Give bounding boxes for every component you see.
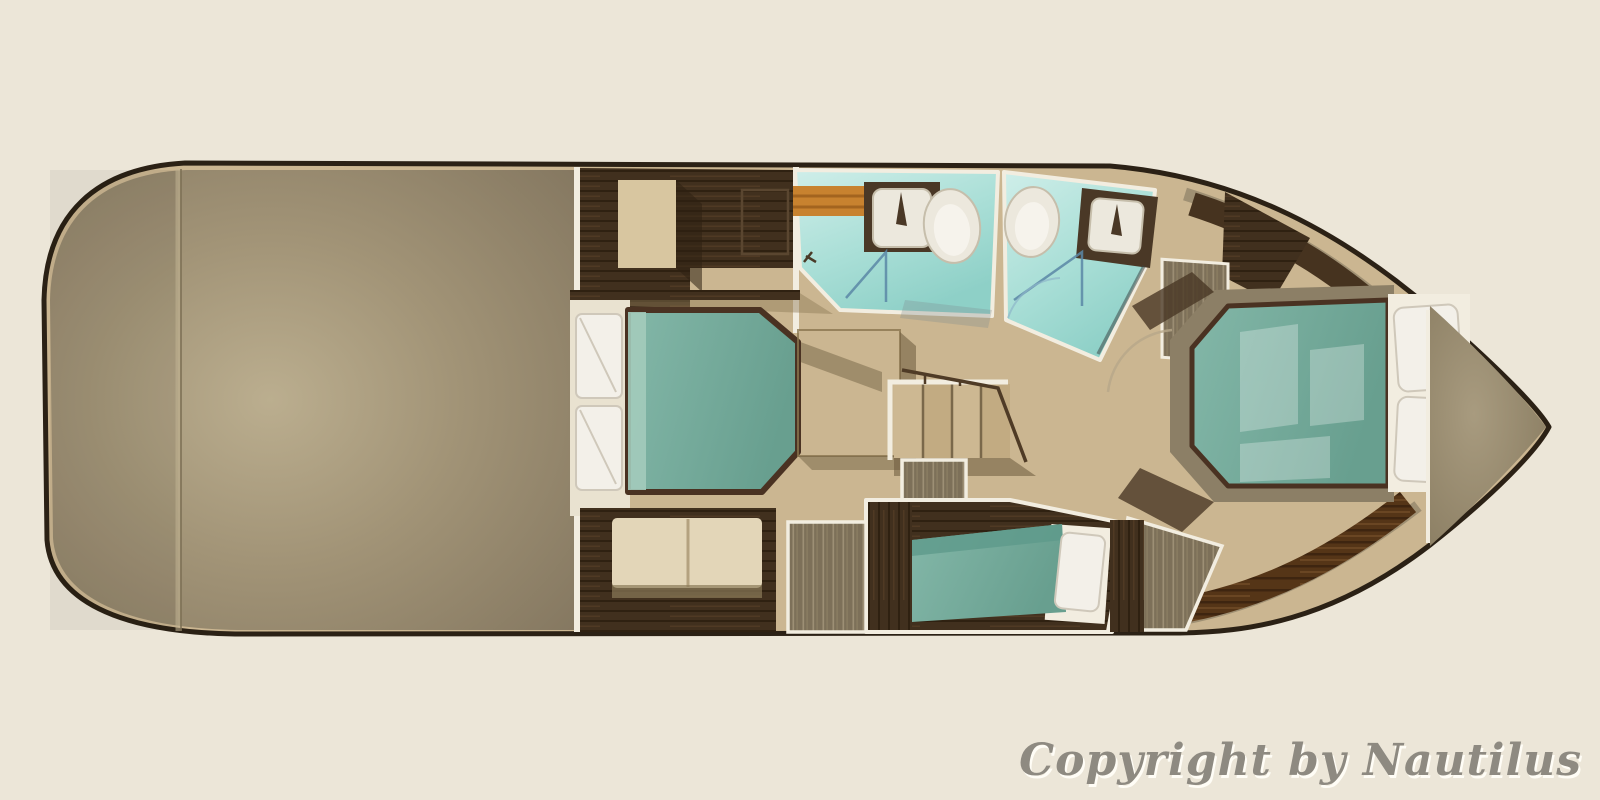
stair-tread bbox=[923, 384, 951, 458]
sink-vanity bbox=[1076, 188, 1158, 268]
mattress bbox=[628, 310, 798, 492]
sofa bbox=[580, 508, 776, 632]
wardrobe-column bbox=[618, 180, 676, 268]
yacht-floor-plan bbox=[0, 0, 1600, 800]
hanging-locker bbox=[788, 522, 866, 632]
stair-tread bbox=[981, 384, 1010, 458]
mattress-head-band bbox=[628, 312, 646, 490]
wood-bulkhead bbox=[1110, 520, 1144, 632]
lower-cabin bbox=[866, 500, 1118, 632]
foredeck bbox=[1426, 306, 1546, 546]
floor-plan-canvas: Copyright by Nautilus bbox=[0, 0, 1600, 800]
aft-deck bbox=[50, 167, 580, 632]
copyright-watermark: Copyright by Nautilus bbox=[1019, 735, 1582, 786]
bow-deck-triangle bbox=[1426, 306, 1546, 546]
pillow bbox=[1054, 532, 1106, 612]
bed-head-trim bbox=[570, 290, 800, 300]
berth-side-cabinet bbox=[868, 502, 912, 630]
guest-double-bed bbox=[570, 290, 800, 516]
deck-shade-band bbox=[50, 170, 178, 630]
sofa-shadow bbox=[612, 585, 762, 598]
teak-shelf bbox=[793, 186, 865, 216]
